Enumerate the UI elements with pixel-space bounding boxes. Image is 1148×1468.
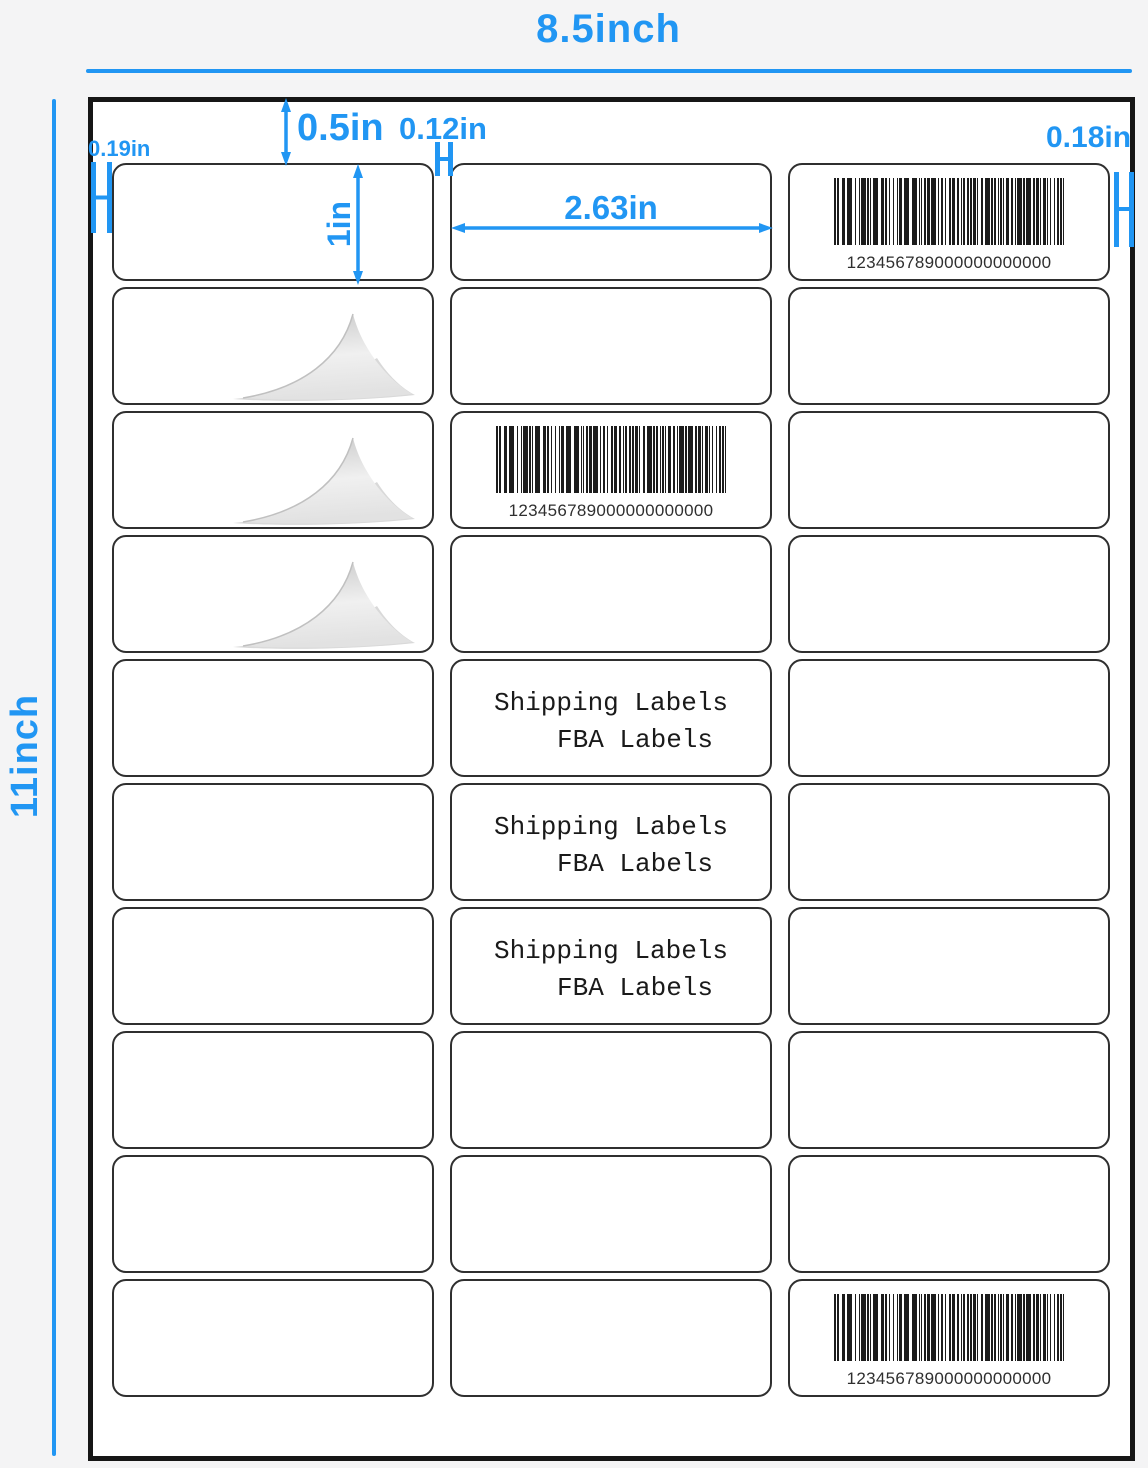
barcode: 123456789000000000000 (494, 426, 728, 521)
label-cell (112, 1155, 434, 1273)
label-cell (450, 287, 772, 405)
barcode: 123456789000000000000 (832, 178, 1066, 273)
peel-corner-icon (219, 426, 429, 526)
top-margin-dimension: 0.5in (297, 109, 384, 147)
label-cell (112, 411, 434, 529)
barcode-icon (832, 1294, 1066, 1361)
peel-corner-icon (219, 302, 429, 402)
label-cell (450, 535, 772, 653)
label-cell (112, 287, 434, 405)
label-cell (112, 659, 434, 777)
label-cell: Shipping LabelsFBA Labels (450, 659, 772, 777)
label-text-line2: FBA Labels (476, 722, 794, 759)
label-sheet-diagram: 8.5inch 11inch 123456789000000000000 123… (0, 0, 1148, 1468)
barcode-number: 123456789000000000000 (832, 1369, 1066, 1389)
label-cell (788, 1031, 1110, 1149)
label-cell (450, 1279, 772, 1397)
label-cell (788, 783, 1110, 901)
label-text-line1: Shipping Labels (452, 933, 770, 970)
barcode-icon (832, 178, 1066, 245)
label-cell: Shipping LabelsFBA Labels (450, 907, 772, 1025)
label-cell: Shipping LabelsFBA Labels (450, 783, 772, 901)
barcode-icon (494, 426, 728, 493)
label-cell: 123456789000000000000 (788, 163, 1110, 281)
barcode-number: 123456789000000000000 (494, 501, 728, 521)
label-cell (112, 535, 434, 653)
label-cell (450, 1155, 772, 1273)
label-sample-text: Shipping LabelsFBA Labels (452, 933, 770, 1007)
label-cell (788, 535, 1110, 653)
label-cell (112, 1031, 434, 1149)
column-gap-dimension: 0.12in (399, 113, 487, 144)
label-text-line2: FBA Labels (476, 970, 794, 1007)
label-cell (788, 659, 1110, 777)
label-cell: 123456789000000000000 (450, 411, 772, 529)
label-sample-text: Shipping LabelsFBA Labels (452, 809, 770, 883)
label-cell: 123456789000000000000 (788, 1279, 1110, 1397)
barcode: 123456789000000000000 (832, 1294, 1066, 1389)
label-text-line1: Shipping Labels (452, 809, 770, 846)
label-cell (112, 783, 434, 901)
label-cell (112, 1279, 434, 1397)
label-cell (112, 907, 434, 1025)
left-margin-dimension: 0.19in (88, 138, 150, 160)
right-margin-dimension: 0.18in (1046, 123, 1131, 153)
label-cell (788, 907, 1110, 1025)
label-cell (788, 1155, 1110, 1273)
label-text-line1: Shipping Labels (452, 685, 770, 722)
label-cell (112, 163, 434, 281)
label-cell (788, 411, 1110, 529)
peel-corner-icon (219, 550, 429, 650)
label-text-line2: FBA Labels (476, 846, 794, 883)
label-cell (788, 287, 1110, 405)
label-cell (450, 1031, 772, 1149)
barcode-number: 123456789000000000000 (832, 253, 1066, 273)
label-height-dimension: 1in (323, 184, 355, 264)
label-sample-text: Shipping LabelsFBA Labels (452, 685, 770, 759)
label-width-dimension: 2.63in (450, 191, 772, 224)
